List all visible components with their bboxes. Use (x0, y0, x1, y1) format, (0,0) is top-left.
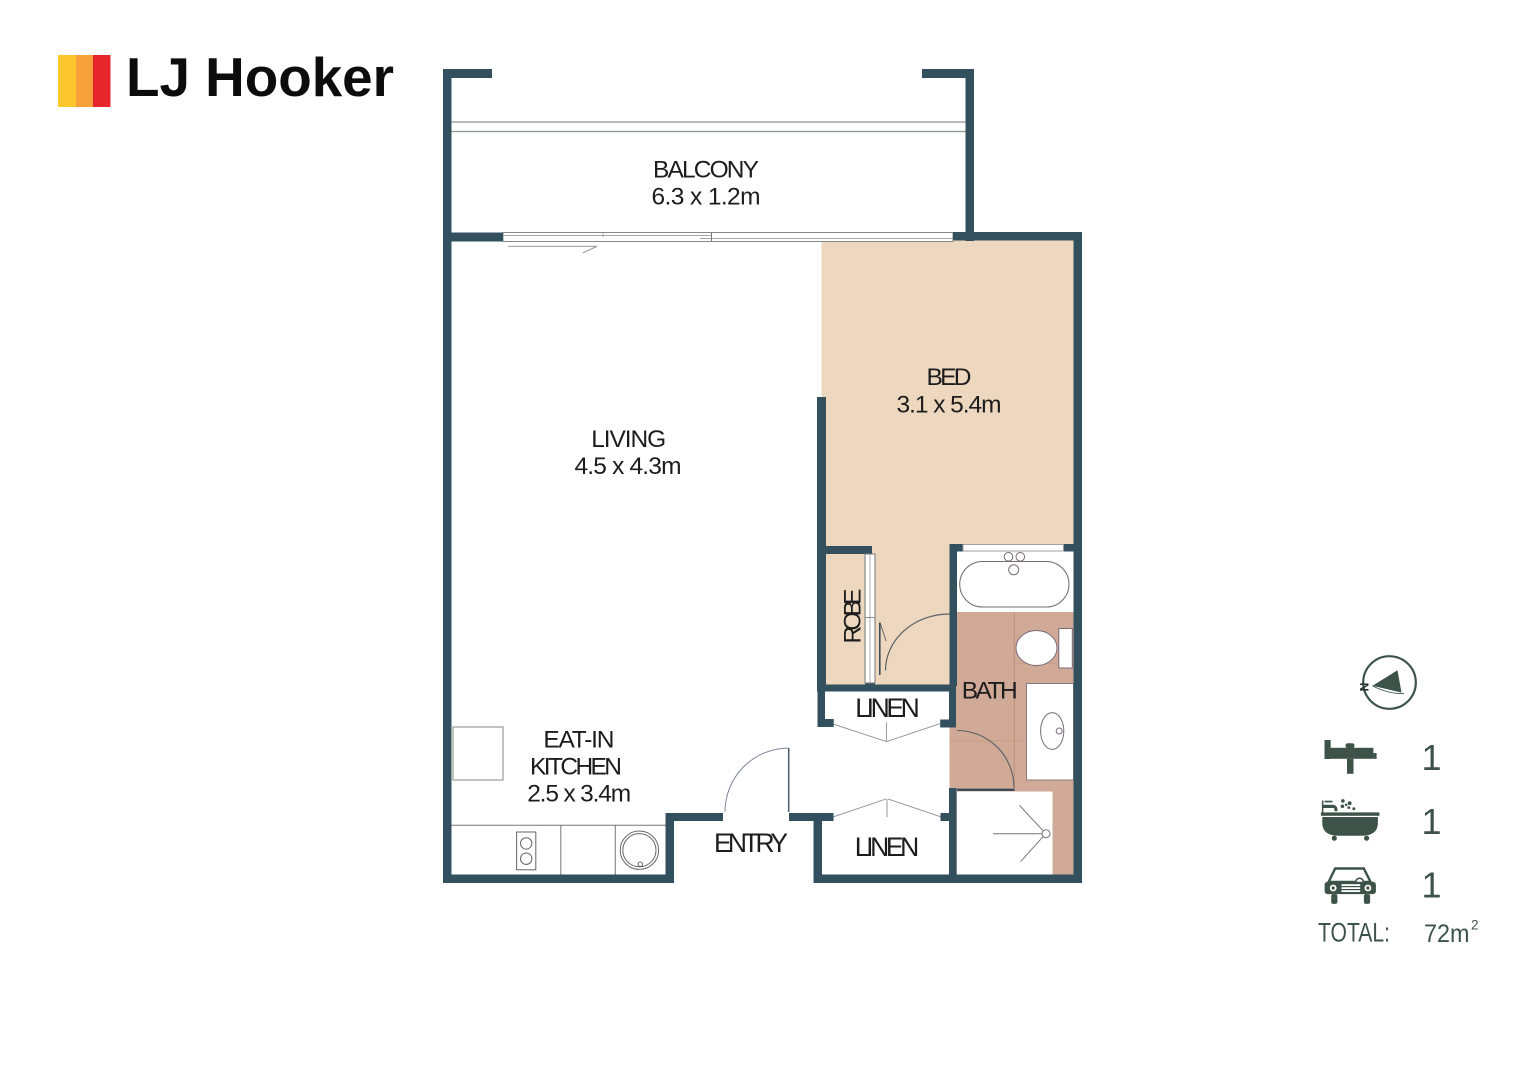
svg-text:72m: 72m (1424, 920, 1470, 948)
svg-text:1: 1 (1421, 865, 1441, 906)
svg-text:N: N (1358, 683, 1372, 692)
svg-text:ROBE: ROBE (839, 589, 866, 644)
svg-text:2.5 x 3.4m: 2.5 x 3.4m (527, 781, 631, 808)
svg-text:BALCONY: BALCONY (653, 157, 759, 184)
svg-text:LINEN: LINEN (855, 693, 920, 723)
svg-text:LJ Hooker: LJ Hooker (126, 46, 394, 108)
svg-text:1: 1 (1421, 801, 1441, 842)
svg-text:4.5 x 4.3m: 4.5 x 4.3m (575, 453, 682, 480)
svg-text:LINEN: LINEN (855, 832, 920, 862)
svg-text:EAT-IN: EAT-IN (543, 727, 614, 754)
svg-text:ENTRY: ENTRY (714, 828, 788, 858)
svg-text:6.3 x 1.2m: 6.3 x 1.2m (652, 184, 761, 211)
svg-text:BATH: BATH (962, 678, 1018, 705)
svg-text:TOTAL:: TOTAL: (1318, 918, 1390, 948)
svg-text:LIVING: LIVING (591, 426, 666, 453)
svg-text:BED: BED (927, 364, 972, 391)
svg-text:KITCHEN: KITCHEN (530, 754, 622, 781)
svg-text:1: 1 (1421, 737, 1441, 778)
svg-text:2: 2 (1471, 918, 1479, 933)
svg-text:3.1 x 5.4m: 3.1 x 5.4m (897, 392, 1002, 419)
